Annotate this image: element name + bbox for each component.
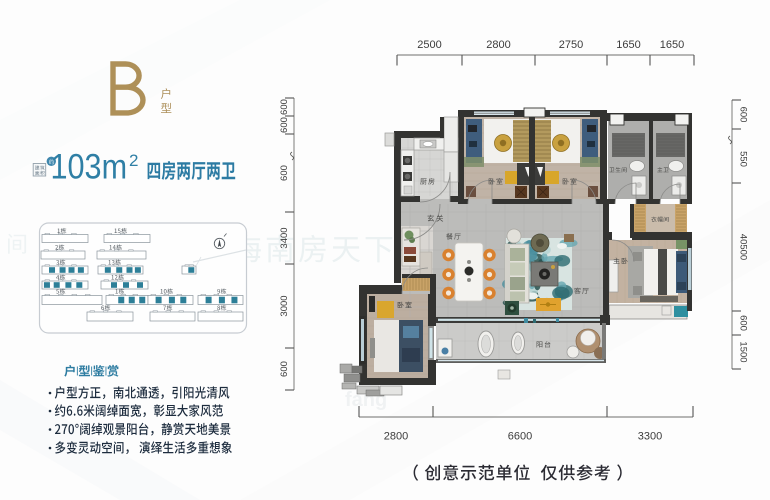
svg-text:3300: 3300 xyxy=(638,431,662,443)
svg-text:1650: 1650 xyxy=(660,39,684,51)
svg-text:1500: 1500 xyxy=(738,341,749,362)
svg-text:40500: 40500 xyxy=(738,234,749,260)
svg-text:103m: 103m xyxy=(51,147,128,186)
svg-text:3000: 3000 xyxy=(279,295,290,316)
svg-text:3400: 3400 xyxy=(279,227,290,248)
svg-text:600: 600 xyxy=(738,107,749,123)
svg-text:2500: 2500 xyxy=(417,39,441,51)
svg-text:6600: 6600 xyxy=(508,431,532,443)
svg-text:2800: 2800 xyxy=(486,39,510,51)
svg-text:550: 550 xyxy=(738,151,749,167)
svg-text:600: 600 xyxy=(738,315,749,331)
svg-text:600: 600 xyxy=(279,165,290,181)
svg-text:600: 600 xyxy=(279,99,290,115)
svg-text:2800: 2800 xyxy=(384,431,408,443)
svg-text:2: 2 xyxy=(129,151,138,170)
svg-text:1650: 1650 xyxy=(616,39,640,51)
svg-text:600: 600 xyxy=(279,361,290,377)
svg-text:600: 600 xyxy=(279,117,290,133)
svg-text:2750: 2750 xyxy=(559,39,583,51)
